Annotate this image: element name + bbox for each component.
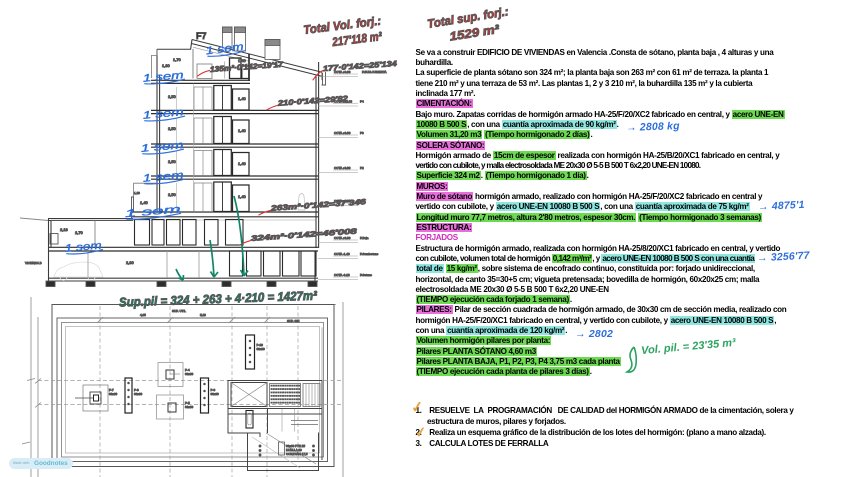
svg-text:P.Semisotano: P.Semisotano (360, 252, 379, 256)
svg-text:CONTRAH 17,5: CONTRAH 17,5 (286, 452, 308, 456)
svg-text:Sup.pil = 324 + 263 + 4·210 =: Sup.pil = 324 + 263 + 4·210 = 1427m² (119, 289, 318, 310)
svg-text:30x30: 30x30 (185, 405, 194, 409)
svg-text:1 sem: 1 sem (142, 69, 184, 85)
svg-text:1,40: 1,40 (238, 96, 247, 101)
svg-text:135m²·0'142=19'17: 135m²·0'142=19'17 (210, 60, 284, 74)
svg-text:2,50: 2,50 (168, 192, 177, 197)
svg-text:1,40: 1,40 (238, 128, 247, 133)
svg-text:1,40: 1,40 (238, 161, 247, 166)
svg-text:2,30: 2,30 (126, 260, 135, 265)
svg-text:1,40: 1,40 (140, 200, 149, 205)
svg-text:COTA +9.08: COTA +9.08 (334, 131, 351, 135)
svg-text:P3: P3 (360, 131, 364, 135)
svg-text:2,50: 2,50 (168, 126, 177, 131)
svg-text:1,10: 1,10 (134, 191, 140, 195)
svg-text:2,70: 2,70 (75, 230, 84, 235)
svg-text:COTA -1.40: COTA -1.40 (334, 252, 350, 256)
svg-text:1,70: 1,70 (173, 57, 182, 62)
svg-text:30x30: 30x30 (257, 347, 266, 351)
svg-text:4,05: 4,05 (140, 313, 146, 317)
svg-text:2,18: 2,18 (60, 227, 69, 232)
svg-text:2,50: 2,50 (168, 159, 177, 164)
svg-text:5,10: 5,10 (200, 313, 206, 317)
svg-text:1,40: 1,40 (238, 194, 247, 199)
svg-text:P2: P2 (360, 166, 364, 170)
svg-text:30x30: 30x30 (134, 392, 143, 396)
svg-text:P4: P4 (360, 100, 364, 104)
svg-text:30x30: 30x30 (211, 392, 220, 396)
svg-text:177·0'142=25'134: 177·0'142=25'134 (323, 59, 398, 73)
svg-text:30x30: 30x30 (185, 372, 194, 376)
svg-text:1 sem: 1 sem (142, 169, 184, 185)
svg-text:P.BUH.CUBIERTA: P.BUH.CUBIERTA (362, 70, 387, 74)
svg-text:30x30: 30x30 (109, 392, 118, 396)
svg-text:P.Baja: P.Baja (360, 236, 369, 240)
svg-text:SUP. UTIL: SUP. UTIL (172, 309, 186, 313)
svg-text:1,30: 1,30 (162, 63, 171, 68)
svg-text:1 sem: 1 sem (64, 240, 102, 255)
svg-text:1 sem: 1 sem (140, 139, 184, 155)
svg-text:1 sem: 1 sem (142, 106, 184, 122)
svg-text:P.Sotano: P.Sotano (360, 273, 372, 277)
svg-text:COTA +6.08: COTA +6.08 (334, 166, 351, 170)
svg-text:324m²·0'142=46'008: 324m²·0'142=46'008 (251, 226, 359, 242)
svg-text:COTA -3.10: COTA -3.10 (334, 273, 350, 277)
svg-text:VIVIENDA B: VIVIENDA B (25, 261, 42, 265)
svg-text:2,50: 2,50 (168, 94, 177, 99)
svg-text:F7: F7 (196, 31, 207, 41)
svg-text:SUP. 324: SUP. 324 (287, 319, 300, 323)
